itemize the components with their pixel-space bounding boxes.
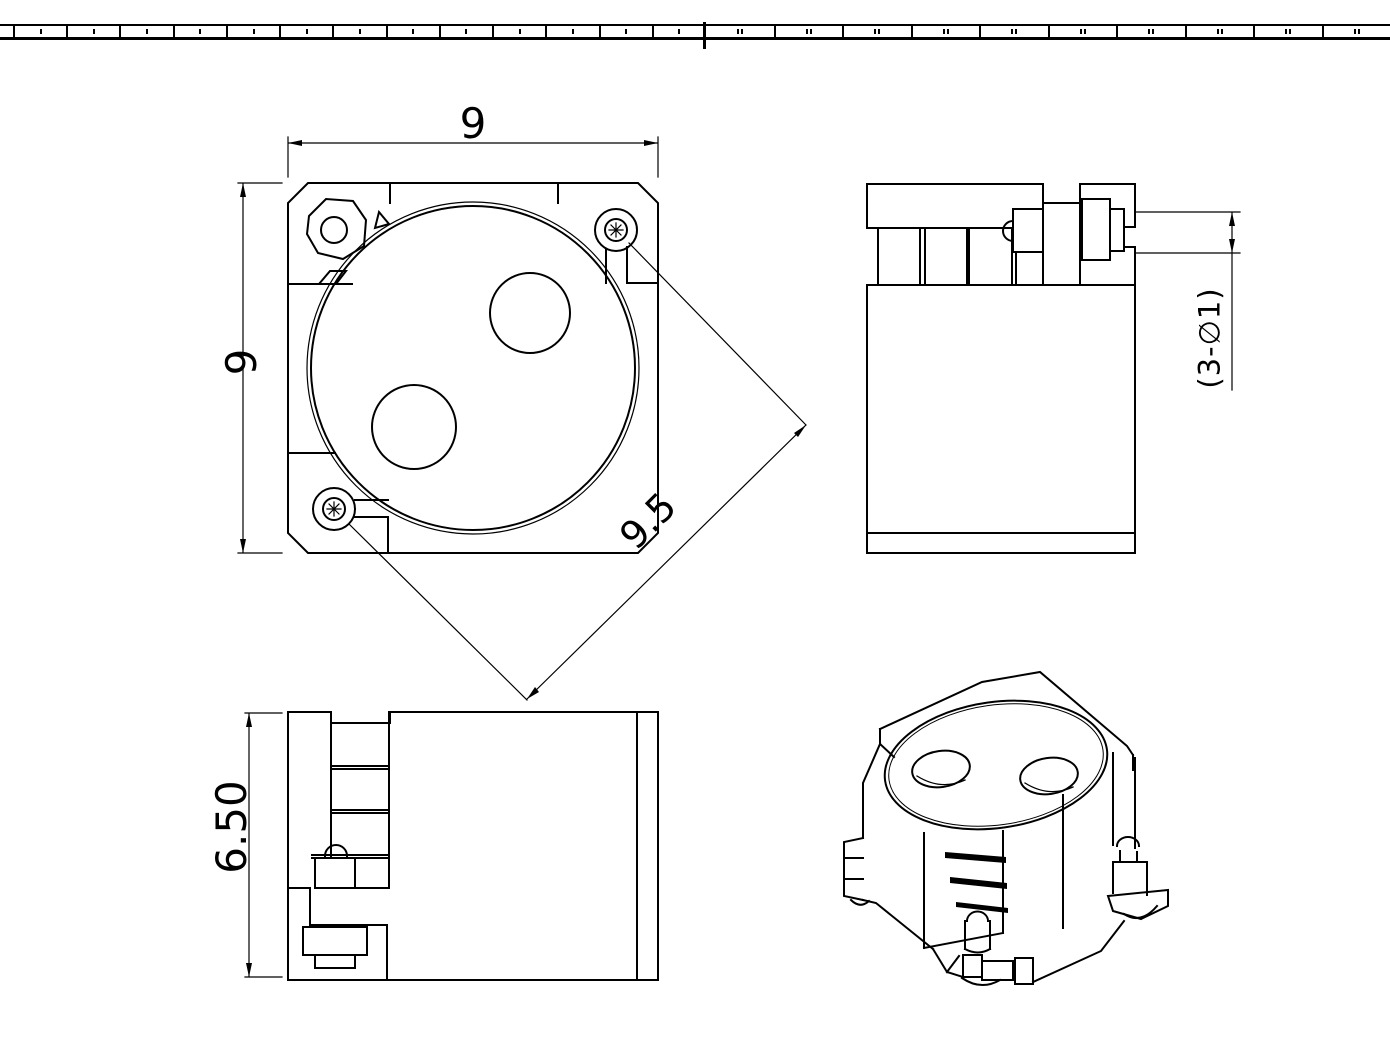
arrowhead bbox=[644, 140, 658, 146]
dim-diagonal-lines bbox=[349, 243, 806, 700]
iso-left-ear bbox=[844, 838, 869, 905]
hole-upper-right bbox=[490, 273, 570, 353]
corner-tab bbox=[307, 199, 366, 259]
iso-front-cutaway bbox=[924, 831, 1008, 953]
dimension-label-top-width: 9 bbox=[460, 103, 487, 145]
iso-top-plate bbox=[880, 672, 1133, 770]
slot-edges bbox=[1043, 203, 1080, 285]
iso-bottom-left-edge bbox=[863, 900, 933, 949]
corner-tab-hole bbox=[321, 217, 347, 243]
iso-top-face-outer bbox=[876, 687, 1115, 843]
isometric-view bbox=[844, 672, 1168, 985]
iso-right-post-screw bbox=[1063, 753, 1168, 928]
ribs bbox=[878, 228, 1012, 285]
stack-separators bbox=[312, 766, 389, 858]
main-bore-circle bbox=[311, 206, 635, 530]
drawing-canvas bbox=[0, 0, 1390, 1060]
side-view bbox=[867, 184, 1135, 553]
base-inner-box-1 bbox=[303, 927, 367, 955]
iso-bottom-feet bbox=[933, 921, 1124, 985]
iso-hole-right-bottom bbox=[1025, 783, 1073, 792]
side-view-outline bbox=[867, 184, 1135, 553]
iso-hole-left-bottom bbox=[917, 776, 965, 785]
screw-top-right bbox=[595, 209, 637, 283]
iso-left-silhouette bbox=[863, 744, 880, 838]
arrowhead bbox=[240, 539, 246, 553]
arrowhead bbox=[240, 183, 246, 197]
main-bore-outer-circle bbox=[307, 202, 639, 534]
drawing-sheet: 9 9 9.5 6.50 (3-∅1) bbox=[0, 0, 1390, 1060]
top-view bbox=[288, 183, 658, 553]
edge-lines bbox=[288, 183, 658, 453]
lower-box bbox=[315, 858, 389, 888]
detent-screw-side bbox=[1003, 209, 1043, 285]
front-view bbox=[288, 712, 658, 980]
dimension-label-left-height: 9 bbox=[221, 349, 263, 376]
stack-edges bbox=[331, 712, 389, 888]
hole-lower-left bbox=[372, 385, 456, 469]
arrowhead bbox=[1229, 212, 1235, 226]
arrowhead bbox=[1229, 239, 1235, 253]
corner-wedge bbox=[375, 212, 389, 228]
arrowhead bbox=[288, 140, 302, 146]
front-view-outline bbox=[288, 712, 658, 980]
arrowhead bbox=[246, 963, 252, 977]
dimension-label-front-height: 6.50 bbox=[211, 780, 253, 874]
side-screw-boss bbox=[1082, 199, 1135, 260]
base-inner-box-2 bbox=[315, 955, 355, 968]
arrowhead bbox=[246, 713, 252, 727]
dimension-label-hole-callout: (3-∅1) bbox=[1196, 287, 1225, 388]
